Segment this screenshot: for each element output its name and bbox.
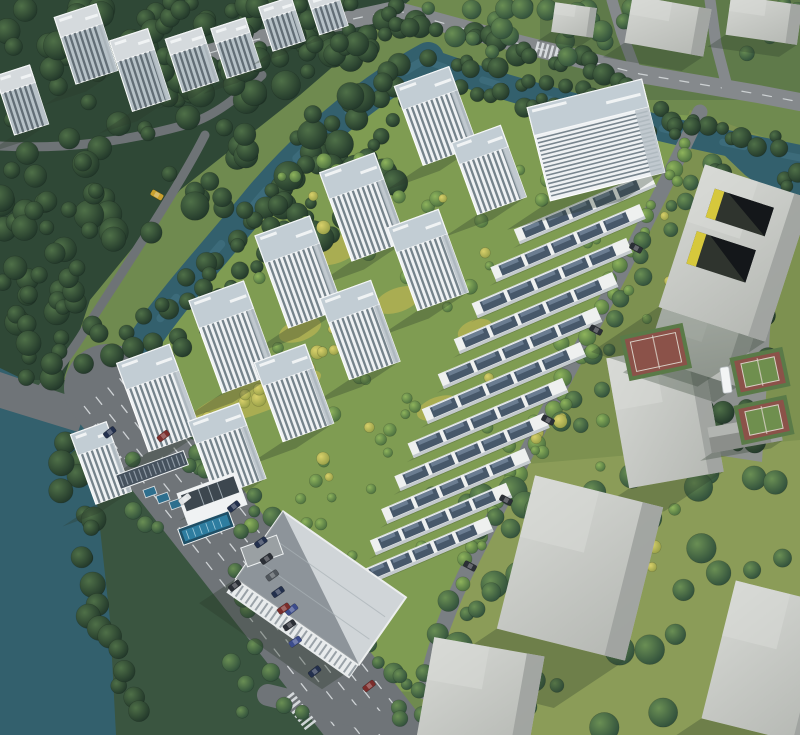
tree (276, 697, 292, 713)
tree (316, 221, 330, 235)
tree (80, 572, 106, 598)
tree (383, 448, 393, 458)
tree (773, 549, 791, 567)
tree (172, 338, 191, 357)
scene-paint-root (0, 0, 800, 735)
tree (54, 330, 69, 345)
tree (665, 624, 686, 645)
tree (462, 60, 480, 78)
tree (140, 222, 162, 244)
tree (558, 79, 572, 93)
tree (330, 34, 349, 53)
tree (201, 172, 219, 190)
tree (648, 698, 677, 727)
tree (295, 493, 306, 504)
tree (83, 520, 99, 536)
tree (49, 479, 73, 503)
tree (113, 660, 135, 682)
tree (375, 434, 387, 446)
tree (317, 452, 330, 465)
tree (301, 64, 315, 78)
tree (383, 423, 396, 436)
tree (393, 669, 407, 683)
tree (560, 398, 572, 410)
tree (553, 414, 567, 428)
tree (770, 139, 788, 157)
aerial-render-canvas (0, 0, 800, 735)
tree (594, 382, 610, 398)
tree (41, 353, 63, 375)
tree (31, 267, 48, 284)
tree (337, 82, 364, 109)
tree (669, 128, 681, 140)
tree (233, 524, 248, 539)
tree (141, 126, 156, 141)
tree (712, 401, 735, 424)
tree (683, 175, 699, 191)
tree (40, 57, 64, 81)
tree (289, 171, 301, 183)
tree (16, 331, 41, 356)
tree (39, 220, 54, 235)
tree (470, 87, 485, 102)
tree (45, 243, 66, 264)
tree (236, 202, 253, 219)
tree (634, 268, 652, 286)
tree (635, 635, 665, 665)
tree (683, 118, 701, 136)
tree (69, 260, 85, 276)
tree (304, 105, 322, 123)
tree (392, 711, 408, 727)
tree (3, 256, 27, 280)
tree (135, 308, 152, 325)
tree (445, 26, 466, 47)
tree (125, 502, 142, 519)
tree (466, 31, 480, 45)
tree (531, 446, 540, 455)
tree (521, 48, 537, 64)
tree (181, 192, 210, 221)
tree (482, 583, 501, 602)
tree (308, 191, 318, 201)
tree (137, 516, 153, 532)
tree (664, 223, 678, 237)
tree (3, 162, 19, 178)
tree (74, 354, 94, 374)
tree (539, 75, 554, 90)
tree (236, 706, 248, 718)
tree (151, 521, 163, 533)
tree (162, 166, 177, 181)
tree (24, 165, 47, 188)
tree (171, 0, 190, 19)
tree (480, 248, 490, 258)
tree (596, 414, 610, 428)
tree (381, 158, 394, 171)
tree (58, 128, 79, 149)
tree (673, 579, 695, 601)
tree (402, 393, 413, 404)
tree (706, 560, 731, 585)
tree (521, 74, 535, 88)
tree (81, 94, 97, 110)
tree (401, 410, 410, 419)
tree (90, 324, 109, 343)
tree (419, 50, 436, 67)
tree (439, 194, 447, 202)
tree (438, 590, 459, 611)
tree (231, 262, 249, 280)
tree (237, 675, 254, 692)
tree (216, 119, 233, 136)
tree (212, 188, 231, 207)
tree (176, 105, 201, 130)
tree (325, 473, 333, 481)
tree (13, 0, 37, 22)
tree (372, 656, 384, 668)
tree (698, 116, 717, 135)
tree (511, 0, 533, 19)
tree (378, 27, 392, 41)
tree (501, 519, 520, 538)
tree (677, 148, 692, 163)
tree (687, 533, 717, 563)
tree (743, 561, 761, 579)
tree (573, 418, 588, 433)
tree (16, 142, 39, 165)
tree (488, 57, 509, 78)
tree (595, 462, 605, 472)
massing-block (551, 2, 597, 38)
tree (177, 268, 195, 286)
tree (364, 422, 374, 432)
tree (393, 190, 406, 203)
tree (5, 38, 23, 56)
tree (222, 653, 240, 671)
tree (386, 113, 400, 127)
tree (74, 154, 92, 172)
tree (666, 200, 677, 211)
tree (254, 272, 266, 284)
tree (155, 298, 169, 312)
tree (747, 137, 766, 156)
tree (25, 201, 44, 220)
tree (20, 286, 38, 304)
tree (128, 701, 149, 722)
tree (48, 450, 74, 476)
tree (606, 310, 623, 327)
tree (101, 227, 126, 252)
tree (742, 466, 766, 490)
tree (109, 639, 129, 659)
tree (327, 493, 336, 502)
tree (763, 470, 787, 494)
tree (81, 222, 98, 239)
tree (297, 120, 327, 150)
tree (315, 518, 327, 530)
tree (366, 484, 376, 494)
tree (309, 474, 322, 487)
tree (262, 663, 280, 681)
tree (271, 71, 300, 100)
tree (477, 541, 487, 551)
tree (278, 172, 287, 181)
tree (247, 488, 262, 503)
tree (61, 202, 77, 218)
tree (672, 176, 683, 187)
tree (624, 285, 634, 295)
tree (234, 123, 256, 145)
tree (295, 705, 310, 720)
tree (558, 47, 578, 67)
scene-svg (0, 0, 800, 735)
tree (468, 601, 485, 618)
tree (660, 212, 668, 220)
tree (409, 401, 421, 413)
tree (485, 45, 499, 59)
tree (456, 577, 470, 591)
tree (422, 2, 435, 15)
tree (18, 369, 34, 385)
tree (400, 18, 419, 37)
tree (250, 260, 263, 273)
tree (373, 73, 392, 92)
tree (316, 153, 331, 168)
tree (462, 0, 481, 19)
tree (249, 506, 261, 518)
tree (491, 17, 513, 39)
tree (317, 347, 327, 357)
tree (492, 83, 509, 100)
tree (230, 238, 244, 252)
tree (716, 122, 729, 135)
tree (268, 195, 288, 215)
tree (71, 546, 92, 567)
tree (429, 22, 444, 37)
tree (88, 183, 103, 198)
